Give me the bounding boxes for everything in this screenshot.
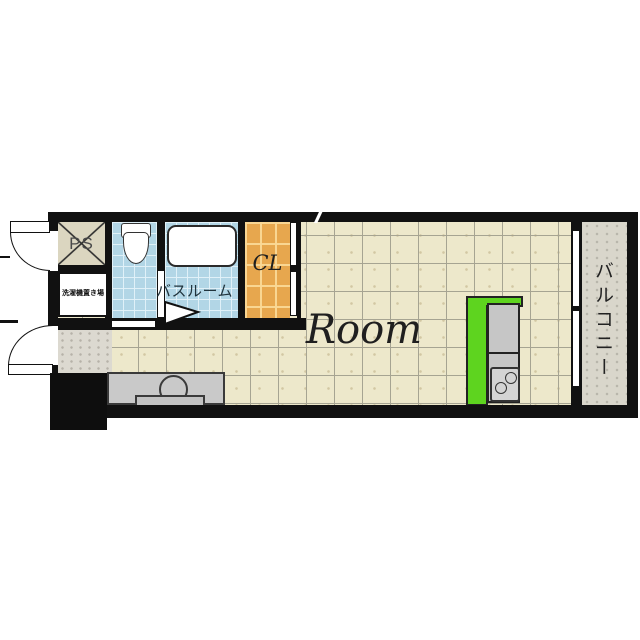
door-swing-arc-top bbox=[10, 232, 50, 271]
laundry-space-label: 洗濯機置き場 bbox=[59, 290, 107, 298]
exterior-boundary-line-lower bbox=[0, 320, 18, 323]
wall-opening-mark bbox=[310, 211, 326, 223]
toilet-door-opening bbox=[112, 320, 155, 328]
kitchen-unit bbox=[487, 303, 520, 403]
bathroom-folding-door-icon bbox=[163, 300, 201, 326]
floor-plan: Room CL PS バスルーム バルコニー 洗濯機置き場 bbox=[0, 0, 640, 640]
closet-label: CL bbox=[245, 248, 290, 278]
stove-icon bbox=[490, 367, 520, 402]
entrance-step-block bbox=[50, 373, 107, 430]
exterior-boundary-line-upper bbox=[0, 256, 10, 258]
wall-top bbox=[48, 212, 638, 222]
stove-burner-icon bbox=[505, 372, 517, 384]
bathtub bbox=[167, 225, 237, 267]
wall-bath-closet bbox=[238, 222, 245, 318]
balcony-label: バルコニー bbox=[587, 246, 617, 396]
balcony-window-mullion bbox=[572, 306, 581, 311]
kitchen-unit-divider bbox=[489, 352, 518, 354]
door-swing-arc-bottom bbox=[8, 325, 53, 366]
wall-bottom bbox=[107, 405, 638, 418]
sink-counter bbox=[107, 372, 225, 405]
bathroom-label: バスルーム bbox=[156, 280, 246, 301]
stove-burner-icon bbox=[495, 382, 507, 394]
wall-right bbox=[627, 212, 638, 418]
room-label: Room bbox=[296, 304, 432, 356]
pipe-shaft-label: PS bbox=[58, 234, 105, 254]
wall-toilet-bath bbox=[157, 222, 165, 270]
hallway-floor bbox=[58, 330, 112, 373]
closet-door-rail-tick bbox=[290, 265, 297, 272]
wall-ps-bottom bbox=[58, 265, 105, 272]
